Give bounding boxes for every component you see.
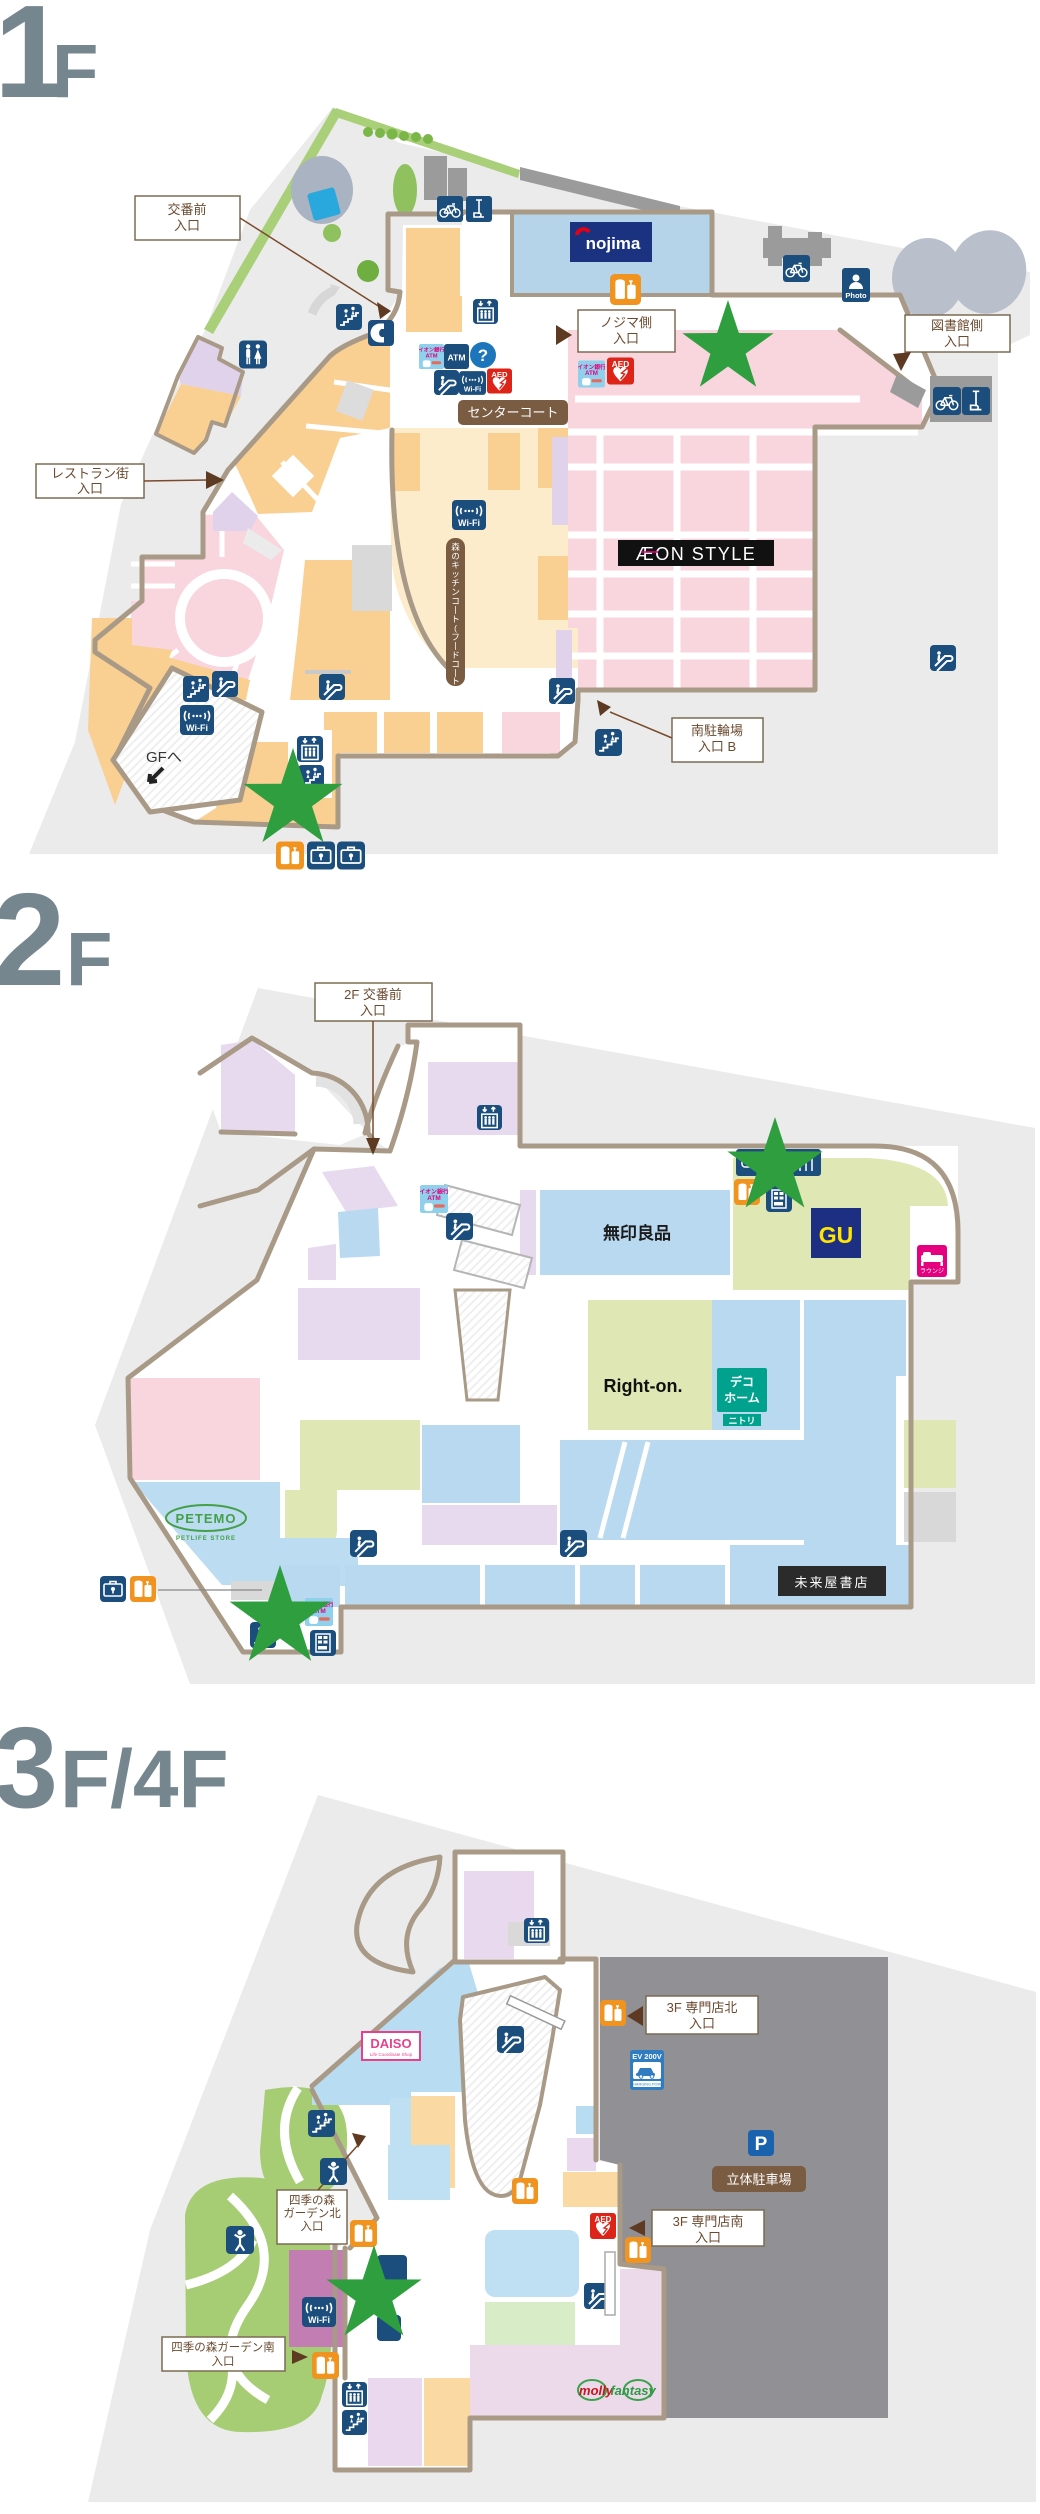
svg-text:入口: 入口 <box>212 2355 235 2368</box>
svg-text:ニトリ: ニトリ <box>728 1416 755 1426</box>
svg-text:F: F <box>52 29 98 114</box>
svg-text:PETEMO: PETEMO <box>176 1511 237 1526</box>
svg-text:立体駐車場: 立体駐車場 <box>726 2172 791 2187</box>
svg-text:無印良品: 無印良品 <box>603 1223 671 1243</box>
svg-text:GU: GU <box>819 1222 854 1248</box>
svg-text:GFへ: GFへ <box>146 749 182 766</box>
svg-text:入口: 入口 <box>695 2230 721 2245</box>
svg-text:入口 B: 入口 B <box>698 739 736 754</box>
svg-text:2: 2 <box>0 866 65 1013</box>
svg-text:デコ: デコ <box>730 1374 754 1389</box>
svg-text:2F 交番前: 2F 交番前 <box>344 987 402 1002</box>
svg-text:F/4F: F/4F <box>60 1734 229 1825</box>
svg-text:レストラン街: レストラン街 <box>51 466 129 481</box>
svg-text:入口: 入口 <box>689 2016 715 2031</box>
svg-text:3F 専門店南: 3F 専門店南 <box>673 2214 744 2229</box>
svg-text:Right-on.: Right-on. <box>604 1376 683 1396</box>
svg-text:南駐輪場: 南駐輪場 <box>691 723 743 738</box>
svg-text:入口: 入口 <box>77 481 103 496</box>
svg-text:3F 専門店北: 3F 専門店北 <box>667 2000 738 2015</box>
svg-text:ノジマ側: ノジマ側 <box>600 315 652 330</box>
svg-text:未来屋書店: 未来屋書店 <box>794 1575 869 1590</box>
svg-text:ホーム: ホーム <box>724 1391 760 1405</box>
svg-text:Life Coordinate Shop: Life Coordinate Shop <box>370 2052 413 2057</box>
svg-text:ガーデン北: ガーデン北 <box>283 2206 341 2220</box>
svg-text:F: F <box>66 917 112 1002</box>
svg-text:図書館側: 図書館側 <box>931 318 983 333</box>
svg-text:四季の森ガーデン南: 四季の森ガーデン南 <box>171 2340 275 2354</box>
svg-text:PETLIFE STORE: PETLIFE STORE <box>176 1536 236 1542</box>
svg-text:交番前: 交番前 <box>167 202 206 217</box>
svg-text:森のキッチンコ丨ト(フ丨ドコ丨ト: 森のキッチンコ丨ト(フ丨ドコ丨ト <box>451 541 460 686</box>
svg-text:センターコート: センターコート <box>467 405 558 420</box>
svg-text:四季の森: 四季の森 <box>289 2193 335 2207</box>
svg-text:fantasy: fantasy <box>610 2383 656 2398</box>
svg-text:nojima: nojima <box>586 234 641 253</box>
svg-text:3: 3 <box>0 1704 58 1832</box>
svg-text:molly: molly <box>579 2383 614 2398</box>
svg-text:入口: 入口 <box>944 334 970 349</box>
svg-text:入口: 入口 <box>301 2220 324 2233</box>
svg-text:ÆON STYLE: ÆON STYLE <box>636 544 757 564</box>
svg-text:入口: 入口 <box>360 1003 386 1018</box>
svg-text:入口: 入口 <box>174 218 200 233</box>
svg-text:DAISO: DAISO <box>370 2036 411 2051</box>
svg-text:入口: 入口 <box>613 331 639 346</box>
